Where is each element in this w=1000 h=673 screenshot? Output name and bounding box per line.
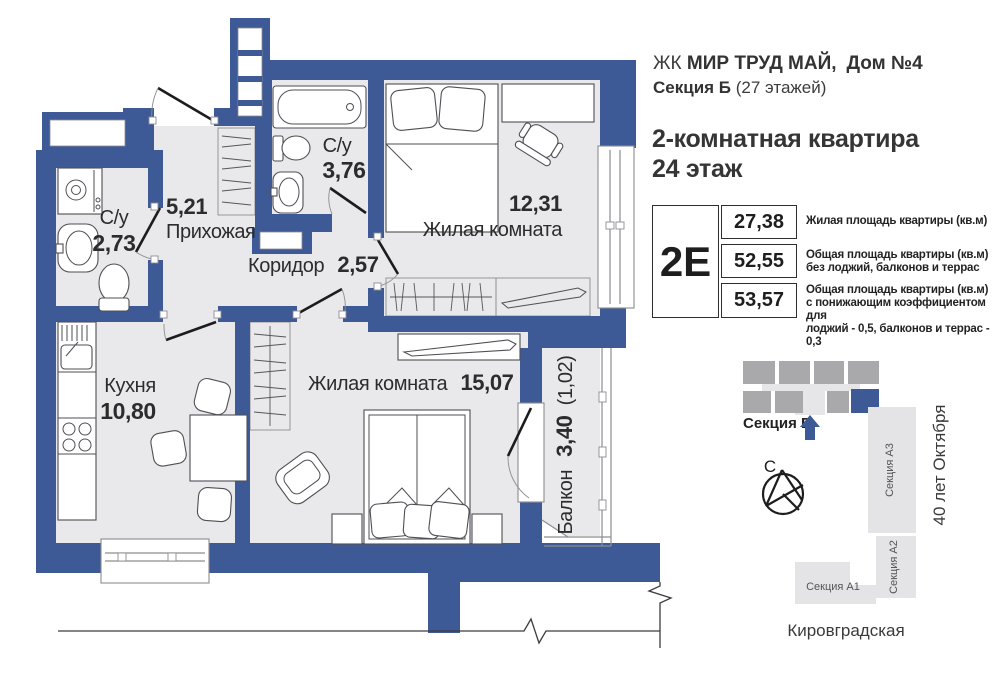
north-label: С	[764, 457, 776, 476]
street-bottom-label: Кировградская	[787, 621, 904, 640]
complex-name: МИР ТРУД МАЙ,	[687, 53, 837, 74]
section-break-lines	[58, 582, 671, 648]
label-bathroom-large-area: 3,76	[322, 157, 365, 183]
complex-prefix: ЖК	[653, 53, 682, 74]
dining-table	[190, 415, 247, 481]
street-right-label: 40 лет Октября	[930, 404, 949, 525]
niche-window	[50, 120, 125, 146]
complex-title-line: ЖК МИР ТРУД МАЙ,Дом №4	[653, 53, 923, 75]
compass: С	[763, 457, 803, 514]
building-a2-label: Секция А2	[888, 540, 900, 594]
area-total-desc: Общая площадь квартиры (кв.м) без лоджий…	[806, 249, 988, 275]
corridor-niche	[260, 232, 302, 249]
label-corridor-area: 2,57	[337, 252, 378, 277]
area-living-value: 27,38	[721, 205, 797, 239]
label-balcony-name: Балкон	[555, 470, 577, 535]
toilet	[99, 264, 129, 302]
building-a3-label: Секция А3	[884, 443, 896, 497]
chair	[197, 487, 232, 522]
apartment-type-box: 2Е	[652, 205, 719, 318]
label-living-room: Жилая комната 15,07	[308, 370, 514, 395]
desk	[502, 84, 594, 122]
label-balcony-area: 3,40	[552, 415, 577, 456]
area-living-desc: Жилая площадь квартиры (кв.м)	[806, 215, 987, 228]
nightstand	[332, 514, 362, 544]
area-total-reduced-value: 53,57	[721, 283, 797, 318]
label-balcony: Балкон 3,40 (1,02)	[552, 355, 577, 534]
label-bedroom-name: Жилая комната	[423, 219, 564, 241]
label-kitchen-name: Кухня	[104, 375, 156, 397]
building-a1-label: Секция А1	[806, 581, 860, 593]
site-plan: Секция Б С Секция А3 Секция А2 Секция А1…	[743, 361, 949, 640]
section-title-line: Секция Б (27 этажей)	[653, 78, 826, 98]
floor-title: 24 этаж	[652, 155, 742, 184]
apartment-title: 2-комнатная квартира	[652, 125, 919, 154]
entry-door	[158, 88, 214, 121]
label-corridor: Коридор 2,57	[248, 252, 379, 277]
area-total-value: 52,55	[721, 244, 797, 278]
label-bedroom-area: 12,31	[509, 191, 562, 216]
section-floors: (27 этажей)	[736, 78, 827, 97]
label-corridor-name: Коридор	[248, 255, 324, 277]
label-bathroom-large-name: С/у	[323, 135, 352, 157]
label-kitchen-area: 10,80	[100, 398, 156, 424]
label-hallway-name: Прихожая	[166, 221, 255, 243]
section-name: Секция Б	[653, 78, 731, 97]
label-balcony-area-reduced: (1,02)	[555, 355, 577, 405]
site-section-b-label: Секция Б	[743, 415, 812, 432]
site-building-b	[743, 361, 885, 417]
floor-plan-page: { "colors": { "wall_blue": "#3d5a96", "f…	[0, 0, 1000, 673]
floor-plan: С/у 2,73 5,21 Прихожая С/у 3,76 12,31 Жи…	[36, 18, 671, 648]
chair	[149, 429, 187, 467]
area-total-reduced-desc: Общая площадь квартиры (кв.м) с понижающ…	[806, 284, 1000, 349]
label-living-room-name: Жилая комната	[308, 373, 449, 395]
bathtub	[273, 86, 366, 128]
label-living-room-area: 15,07	[460, 370, 513, 395]
label-bathroom-small-area: 2,73	[92, 230, 135, 256]
label-hallway-area: 5,21	[166, 194, 207, 219]
kitchen-sink	[61, 345, 92, 369]
label-bathroom-small-name: С/у	[100, 207, 129, 229]
house-number: Дом №4	[847, 53, 923, 74]
balcony-door-window	[518, 403, 544, 502]
nightstand	[472, 514, 502, 544]
